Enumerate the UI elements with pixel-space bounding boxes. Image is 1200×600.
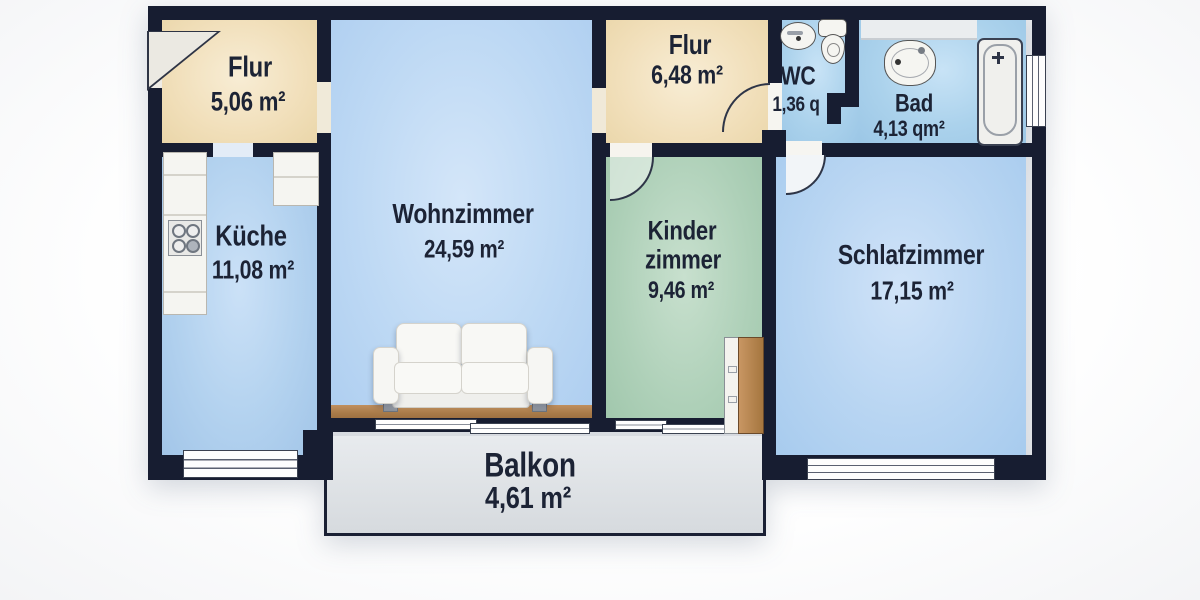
doorway-schlafzimmer — [786, 141, 822, 155]
floor-plan: Flur 5,06 m² Küche 11,08 m² Wohnzimmer 2… — [0, 0, 1200, 600]
counter-divider — [164, 291, 206, 293]
window-schlafzimmer — [807, 458, 995, 480]
bad-sink-drain — [895, 59, 901, 65]
wall-kinder-schlafzimmer — [762, 143, 776, 455]
bathtub — [977, 38, 1023, 146]
sofa-seat-cushion-left — [394, 362, 462, 394]
stove-burner — [172, 224, 186, 238]
bad-sink — [884, 40, 936, 86]
wall-flur-wohnzimmer-upper — [317, 20, 331, 82]
balcony-door-panel-right — [470, 423, 590, 434]
doorway-flur-wohnzimmer — [317, 82, 331, 133]
wardrobe-body — [738, 337, 764, 434]
sofa-armrest-right — [527, 347, 553, 404]
counter-divider — [274, 176, 318, 178]
sofa-seat-cushion-right — [461, 362, 529, 394]
room-label-flur-entry: Flur — [228, 52, 272, 85]
stove-burner — [186, 239, 200, 253]
wc-sink-drain — [796, 36, 801, 41]
wall-bottom-corner-left — [303, 430, 333, 458]
room-label-wohnzimmer: Wohnzimmer — [392, 198, 533, 230]
wall-left-upper — [148, 6, 162, 34]
stove-burner — [172, 239, 186, 253]
doorway-flur-kueche — [213, 143, 253, 157]
wall-flur-kinder-right — [652, 143, 777, 157]
toilet-bowl-inner — [827, 43, 840, 57]
wardrobe-handle — [728, 396, 737, 403]
counter-divider — [164, 214, 206, 216]
room-area-kinderzimmer: 9,46 m² — [648, 277, 714, 305]
doorway-wohnzimmer-flur — [592, 88, 606, 133]
room-label-wc: WC — [780, 61, 815, 92]
window-kinderzimmer-left — [615, 420, 667, 430]
room-label-kueche: Küche — [215, 221, 286, 254]
bath-shelf — [861, 20, 977, 40]
wall-wohnzimmer-kinder — [592, 133, 606, 432]
room-label-kinderzimmer-line1: Kinder — [648, 216, 717, 247]
stove-burner — [186, 224, 200, 238]
kitchen-cabinet — [273, 152, 319, 206]
doorway-flur-kinderzimmer — [610, 143, 652, 157]
wall-top — [148, 6, 1046, 20]
window-bad — [1026, 55, 1046, 127]
wc-sink — [780, 22, 816, 50]
wall-wc-bad — [845, 6, 859, 93]
room-area-flur-center: 6,48 m² — [651, 60, 723, 91]
room-area-kueche: 11,08 m² — [212, 255, 294, 286]
wall-wohnzimmer-flur-upper — [592, 20, 606, 88]
room-area-wc: 1,36 q — [772, 93, 819, 117]
balcony-door-panel-left — [375, 419, 477, 430]
room-label-kinderzimmer-line2: zimmer — [645, 245, 721, 276]
wall-kueche-wohnzimmer — [317, 133, 331, 455]
stove-icon — [168, 220, 202, 256]
counter-divider — [164, 174, 206, 176]
room-area-balkon: 4,61 m² — [485, 480, 571, 516]
wardrobe-handle — [728, 366, 737, 373]
tub-faucet-icon — [997, 52, 1000, 64]
room-area-bad: 4,13 qm² — [873, 116, 944, 142]
room-label-flur-center: Flur — [669, 29, 711, 61]
window-kueche — [183, 450, 298, 478]
room-area-wohnzimmer: 24,59 m² — [424, 236, 504, 265]
room-area-flur-entry: 5,06 m² — [211, 87, 286, 118]
wall-wc-step-v — [827, 93, 841, 124]
room-area-schlafzimmer: 17,15 m² — [870, 276, 953, 307]
wall-flur-kinder-left — [592, 143, 610, 157]
room-label-schlafzimmer: Schlafzimmer — [838, 239, 984, 271]
bad-sink-faucet — [918, 47, 925, 54]
room-label-bad: Bad — [895, 90, 933, 119]
wc-sink-faucet — [787, 31, 803, 35]
